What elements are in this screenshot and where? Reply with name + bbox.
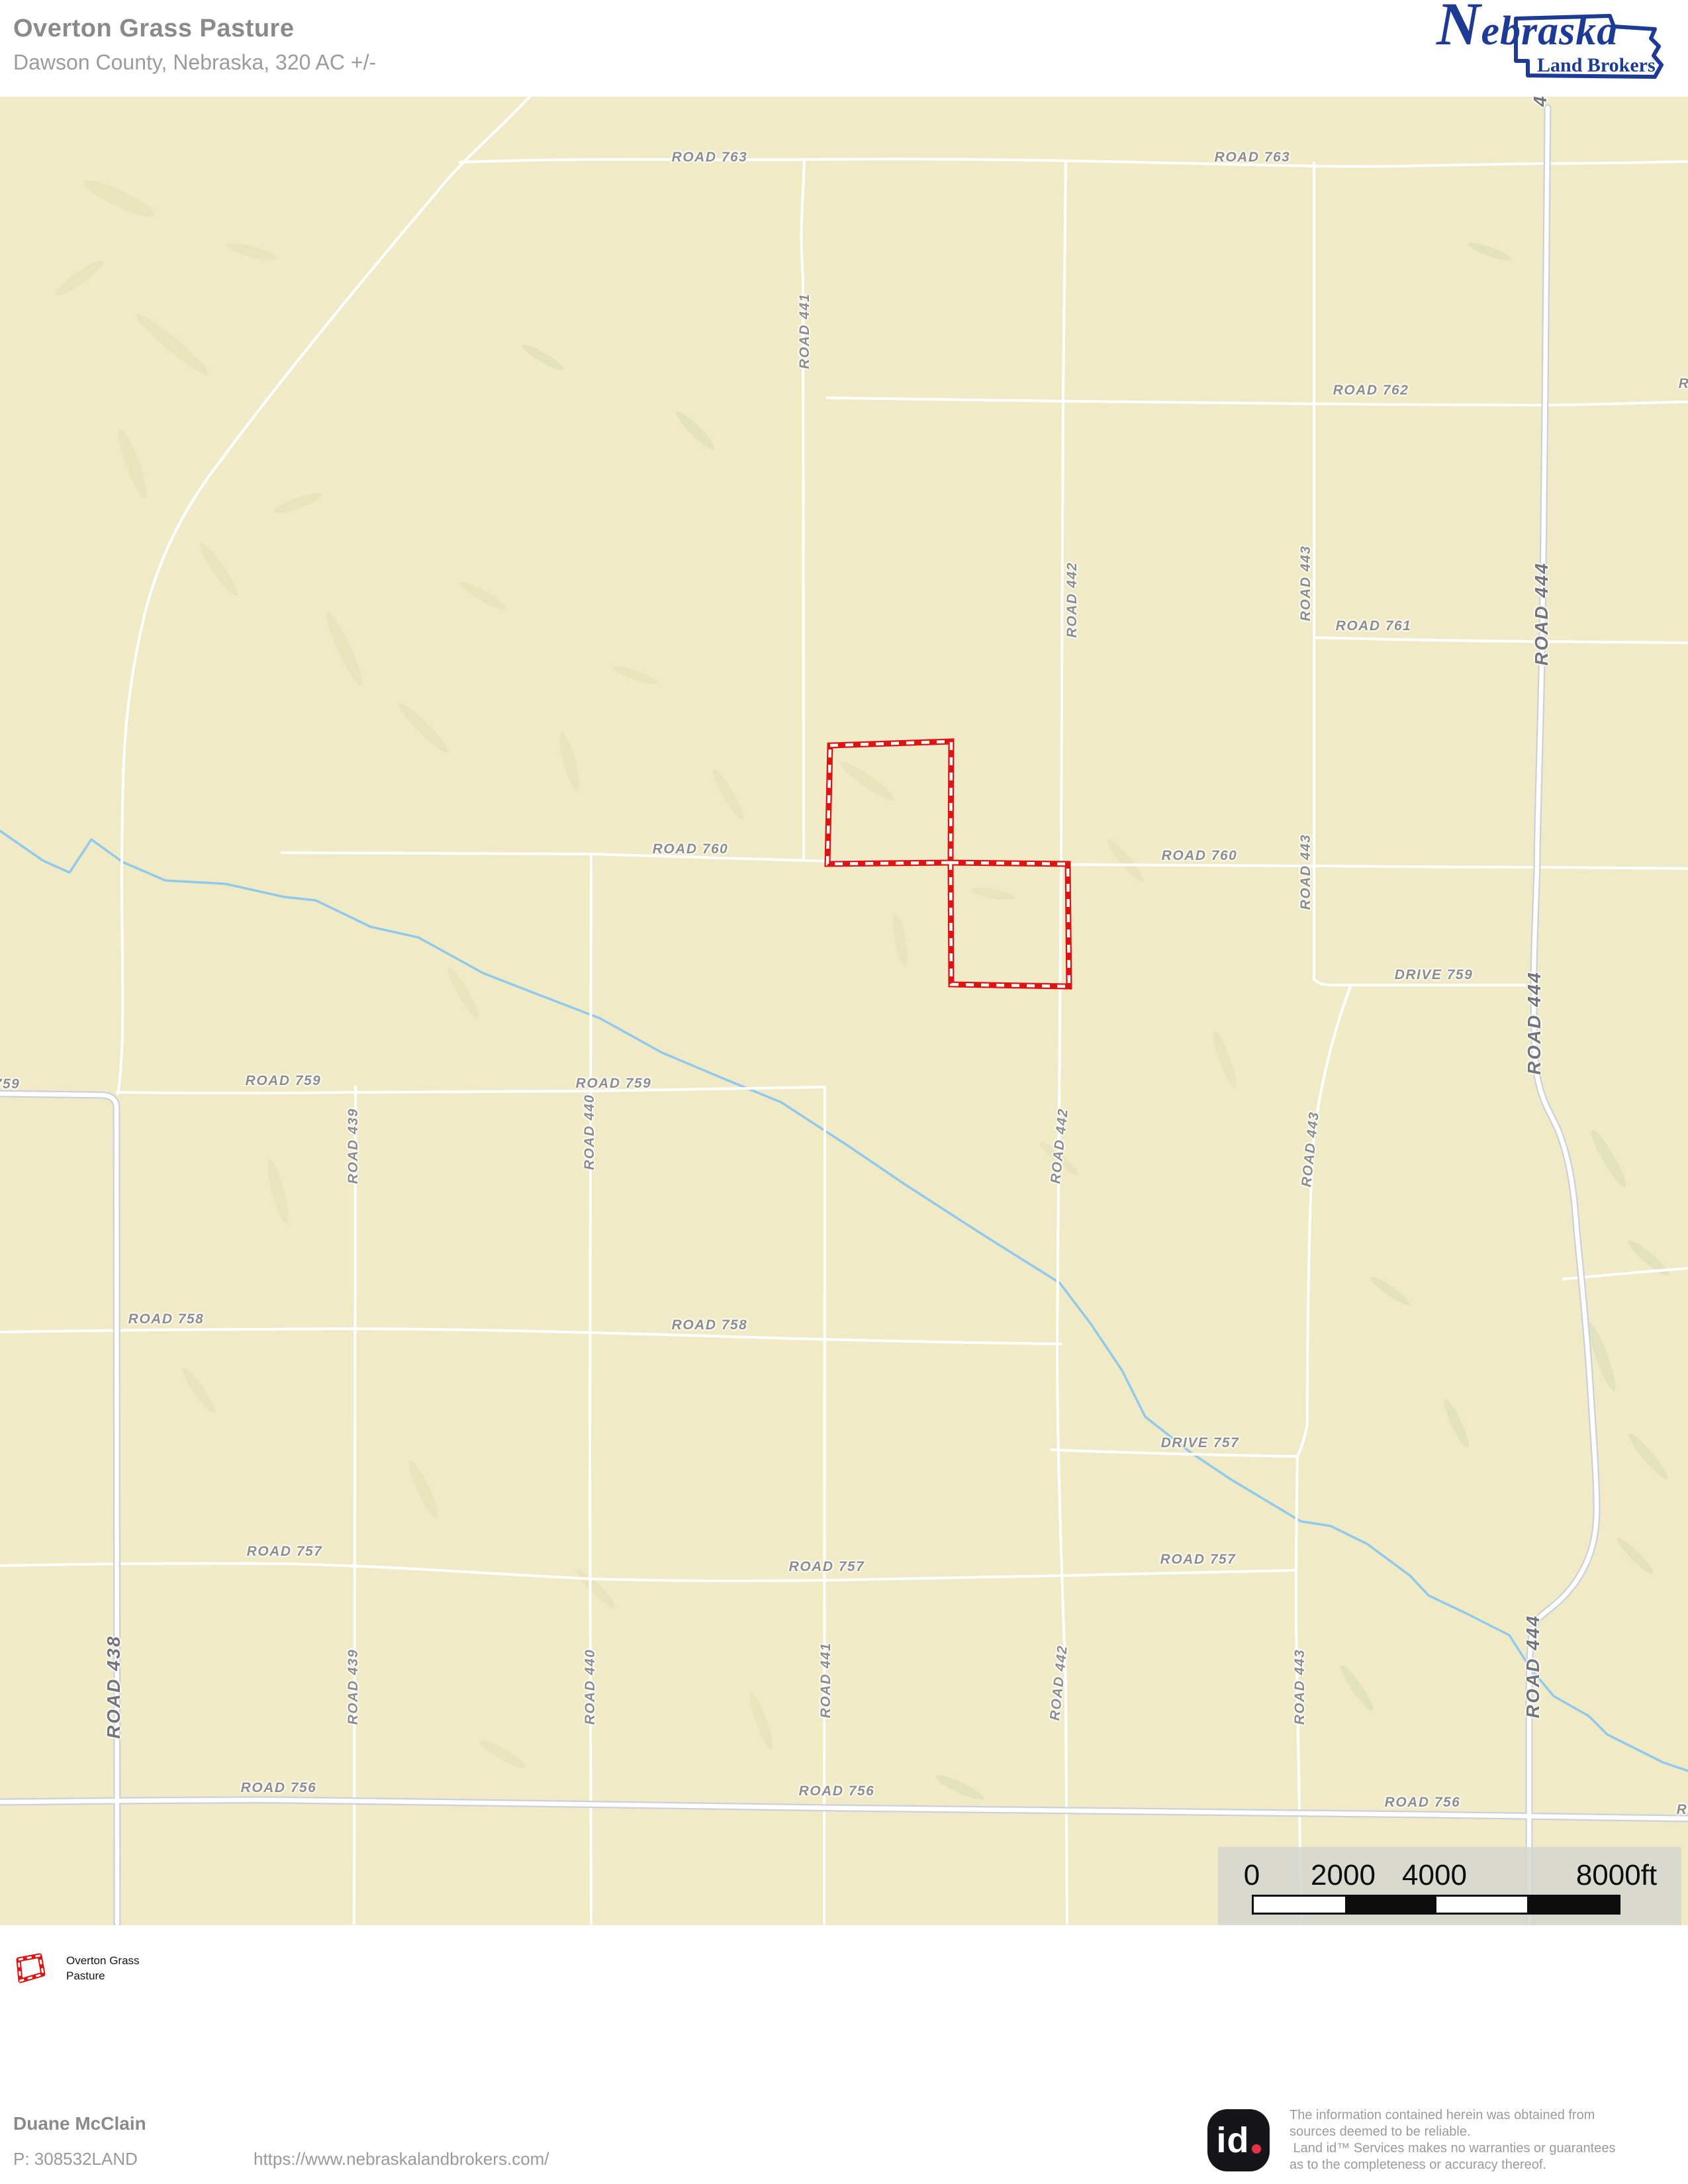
road-label: ROAD 444: [1531, 562, 1552, 666]
road-label: ROAD 443: [1292, 1649, 1308, 1725]
road-label: ROAD 756: [1385, 1795, 1461, 1811]
agent-phone: P: 308532LAND: [13, 2149, 138, 2169]
logo-initial: N: [1436, 0, 1481, 58]
road-label: ROAD 442: [1064, 562, 1080, 638]
road-label: ROAD 758: [128, 1311, 205, 1327]
road-label: ROAD 759: [576, 1076, 652, 1092]
road-label: ROAD 444: [1523, 1615, 1544, 1719]
scale-tick-2000: 2000: [1311, 1859, 1376, 1892]
road-label: ROAD 759: [0, 1076, 20, 1092]
road-label: ROAD 759: [246, 1073, 322, 1089]
legend-label: Overton Grass Pasture: [66, 1953, 140, 1983]
road-label: ROAD 763: [1215, 150, 1291, 166]
road-label: ROAD 763: [672, 150, 748, 166]
road-label: ROAD 756: [799, 1783, 875, 1799]
road-label: DRIVE 757: [1161, 1435, 1240, 1451]
road-label: ROAD 439: [346, 1108, 361, 1184]
road-label: ROAD 440: [583, 1649, 598, 1725]
logo-subtext: Land Brokers: [1537, 54, 1656, 77]
agent-name: Duane McClain: [13, 2113, 146, 2134]
road-label: ROAD 438: [103, 1635, 124, 1739]
scale-tick-8000: 8000ft: [1576, 1859, 1657, 1892]
road-label: ROAD 756: [241, 1780, 317, 1796]
road-label: ROAD 441: [818, 1642, 834, 1719]
road-label: ROAD 439: [346, 1649, 361, 1725]
road-label: ROAD 762: [1333, 383, 1409, 399]
road-label: ROAD 760: [1162, 848, 1238, 864]
road-label: ROAD 444: [1524, 971, 1545, 1075]
road-label: ROAD 443: [1298, 834, 1314, 910]
road-label: ROAD 440: [582, 1094, 598, 1170]
road-label: DRIVE 759: [1395, 967, 1474, 983]
page-title: Overton Grass Pasture: [13, 15, 294, 43]
road-label: ROAD 761: [1336, 618, 1412, 634]
map-canvas: ROAD 763ROAD 763ROAD 441ROAD 762ROAD 762…: [0, 97, 1688, 1925]
minor-roads: [0, 97, 1688, 1923]
terrain-texture-hills: [520, 240, 1671, 1803]
major-roads: [0, 108, 1688, 1923]
scale-tick-4000: 4000: [1402, 1859, 1467, 1892]
road-label: ROAD 757: [1160, 1552, 1237, 1568]
disclaimer-text: The information contained herein was obt…: [1289, 2107, 1687, 2173]
scale-bar: 0 2000 4000 8000ft: [1218, 1847, 1681, 1925]
land-id-logo: id: [1207, 2109, 1270, 2171]
legend-parcel-icon: [15, 1952, 48, 1986]
page-subtitle: Dawson County, Nebraska, 320 AC +/-: [13, 50, 376, 75]
scale-tick-0: 0: [1244, 1859, 1260, 1892]
road-label: 4: [1530, 97, 1551, 107]
agent-website-link[interactable]: https://www.nebraskalandbrokers.com/: [254, 2149, 549, 2169]
road-label: ROAD 762: [1679, 376, 1688, 392]
major-road-casing: [0, 108, 1688, 1923]
road-label: ROAD 757: [247, 1544, 323, 1560]
land-id-logo-dot: [1252, 2144, 1261, 2154]
road-label: ROAD 443: [1298, 546, 1314, 622]
road-label: ROAD 441: [797, 293, 813, 369]
nebraska-land-brokers-logo: Nebraska Land Brokers: [1436, 3, 1675, 91]
logo-name: ebraska: [1481, 9, 1618, 54]
scale-bar-segments: [1252, 1895, 1620, 1915]
road-label: ROAD 756: [1677, 1802, 1688, 1818]
road-label: ROAD 757: [789, 1559, 865, 1575]
road-label: ROAD 758: [672, 1317, 748, 1333]
road-label: ROAD 760: [653, 841, 729, 857]
